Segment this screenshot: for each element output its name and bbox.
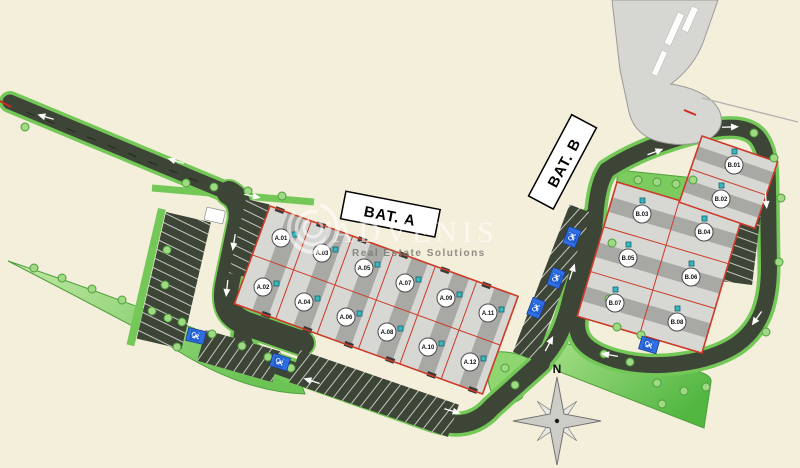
svg-text:B.02: B.02 [715,197,728,203]
site-plan: ♿ ♿ ♿ ♿ ♿ ♿ A.01 A.02 A.03 A.04 A.05 A.0… [0,0,800,468]
utility-marker-icon [274,281,279,286]
svg-text:B.05: B.05 [622,256,635,262]
utility-marker-icon [398,326,403,331]
utility-marker-icon [481,356,486,361]
svg-text:A.01: A.01 [275,236,288,242]
compass-north-label: N [553,362,562,376]
utility-marker-icon [613,287,618,292]
utility-marker-icon [416,277,421,282]
utility-marker-icon [499,307,504,312]
utility-marker-icon [375,262,380,267]
svg-text:B.08: B.08 [671,320,684,326]
svg-text:B.07: B.07 [609,301,622,307]
svg-text:A.10: A.10 [422,345,435,351]
svg-text:A.07: A.07 [399,281,412,287]
utility-marker-icon [675,306,680,311]
utility-marker-icon [357,311,362,316]
utility-marker-icon [315,296,320,301]
svg-text:B.01: B.01 [728,163,741,169]
svg-text:A.04: A.04 [298,300,311,306]
utility-marker-icon [439,341,444,346]
svg-text:A.11: A.11 [482,311,495,317]
svg-text:B.04: B.04 [698,230,711,236]
utility-marker-icon [626,242,631,247]
svg-text:A.02: A.02 [257,285,270,291]
utility-marker-icon [732,149,737,154]
utility-marker-icon [702,216,707,221]
svg-text:A.12: A.12 [464,360,477,366]
svg-text:A.05: A.05 [358,266,371,272]
svg-text:A.08: A.08 [381,330,394,336]
svg-text:A.06: A.06 [340,315,353,321]
watermark-tagline: Real Estate Solutions [352,248,486,259]
svg-text:B.06: B.06 [685,275,698,281]
compass-center [555,419,559,423]
utility-marker-icon [640,198,645,203]
watermark-brand: ADVENIS [332,216,499,249]
svg-text:B.03: B.03 [636,212,649,218]
utility-marker-icon [689,261,694,266]
utility-marker-icon [719,183,724,188]
utility-marker-icon [457,292,462,297]
site-plan-drawing: ♿ ♿ ♿ ♿ ♿ ♿ A.01 A.02 A.03 A.04 A.05 A.0… [0,0,800,468]
svg-text:A.09: A.09 [440,296,453,302]
